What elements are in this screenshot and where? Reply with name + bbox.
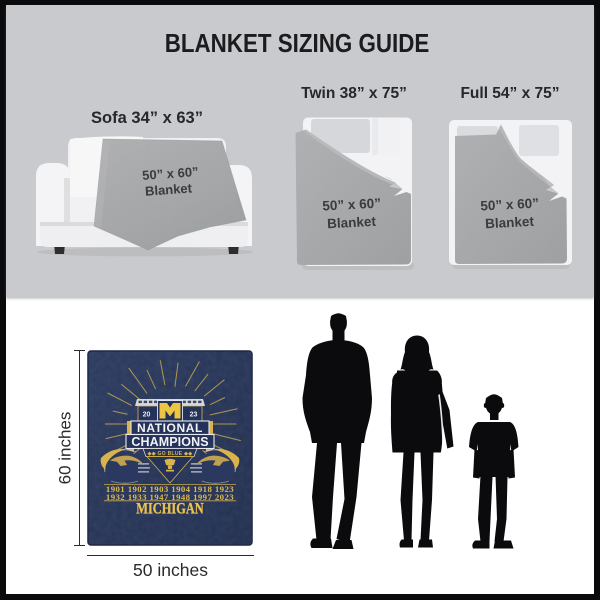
svg-text:23: 23: [190, 412, 198, 419]
svg-text:20: 20: [143, 412, 151, 419]
svg-text:Blanket: Blanket: [327, 214, 377, 232]
svg-text:50” x 60”: 50” x 60”: [322, 195, 381, 213]
svg-text:CHAMPIONS: CHAMPIONS: [131, 435, 208, 449]
svg-text:50” x 60”: 50” x 60”: [480, 195, 539, 213]
svg-text:NATIONAL: NATIONAL: [137, 421, 203, 435]
svg-text:MICHIGAN: MICHIGAN: [136, 500, 203, 518]
svg-text:◆◆ GO BLUE ◆◆: ◆◆ GO BLUE ◆◆: [147, 451, 193, 457]
svg-text:Blanket: Blanket: [485, 214, 535, 232]
